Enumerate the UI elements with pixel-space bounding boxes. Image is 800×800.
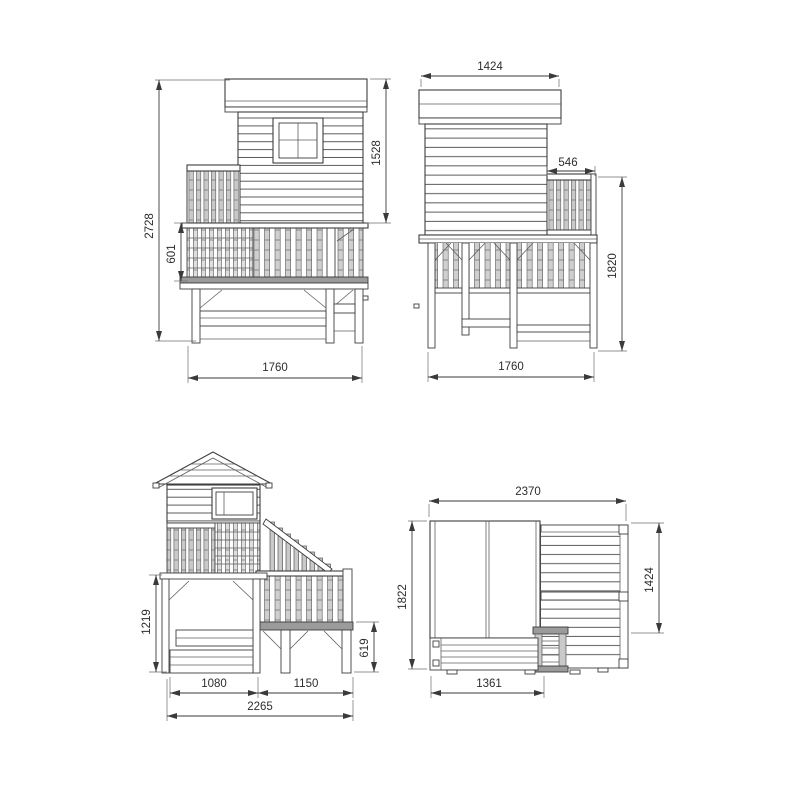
platform-deck [419,235,597,243]
stair-railing [263,519,332,573]
dim-label-overall-width-plan: 2370 [515,486,541,498]
window [273,118,323,163]
roof-from-above [430,521,540,638]
tower-base-and-sandbox [160,573,267,673]
dim-label-landing-height: 619 [359,638,371,657]
upper-railing [187,165,240,223]
dim-label-balcony-depth: 546 [558,157,577,169]
legs-and-fence [414,243,597,348]
roof [225,79,367,112]
view-plan: 2370 1822 1424 1361 [397,486,664,698]
view-rear-elevation: 1424 546 1820 1760 [414,61,627,382]
dim-label-roof-width: 1424 [477,61,503,73]
dim-label-sandbox-width-plan: 1361 [476,678,502,690]
dim-label-house-height: 1528 [371,140,383,166]
dim-label-tower-height: 1219 [141,609,153,635]
dim-label-overall-depth-plan: 1822 [397,584,409,610]
platform-deck [180,277,368,289]
dim-label-terrace-depth-plan: 1424 [644,567,656,593]
playhouse-dimension-drawing: 2728 601 1528 1760 [0,0,800,800]
dim-label-stair-span: 1150 [294,678,319,690]
terrace-from-above [541,525,628,668]
technical-drawing-canvas: 2728 601 1528 1760 [0,0,800,800]
house-wall [425,124,547,235]
stair-landing [254,569,353,673]
window [212,488,257,519]
dim-label-balustrade-height: 601 [166,244,178,263]
dim-label-height-to-deck: 1820 [607,253,619,279]
view-side-elevation-left: 2728 601 1528 1760 [144,79,391,383]
balcony-balustrade [182,223,368,277]
dim-label-overall-width-front: 2265 [247,701,273,713]
dim-label-tower-width: 1080 [201,678,227,690]
roof [419,90,561,124]
balcony-railing [547,174,596,235]
view-front-elevation: 1219 619 1080 1150 2265 [141,452,379,721]
gable-roof [153,452,272,488]
dim-label-base-width-rear: 1760 [498,361,524,373]
dim-label-overall-height: 2728 [144,213,156,239]
dim-label-base-width-left: 1760 [262,362,288,374]
legs-and-sandbox [192,289,368,343]
